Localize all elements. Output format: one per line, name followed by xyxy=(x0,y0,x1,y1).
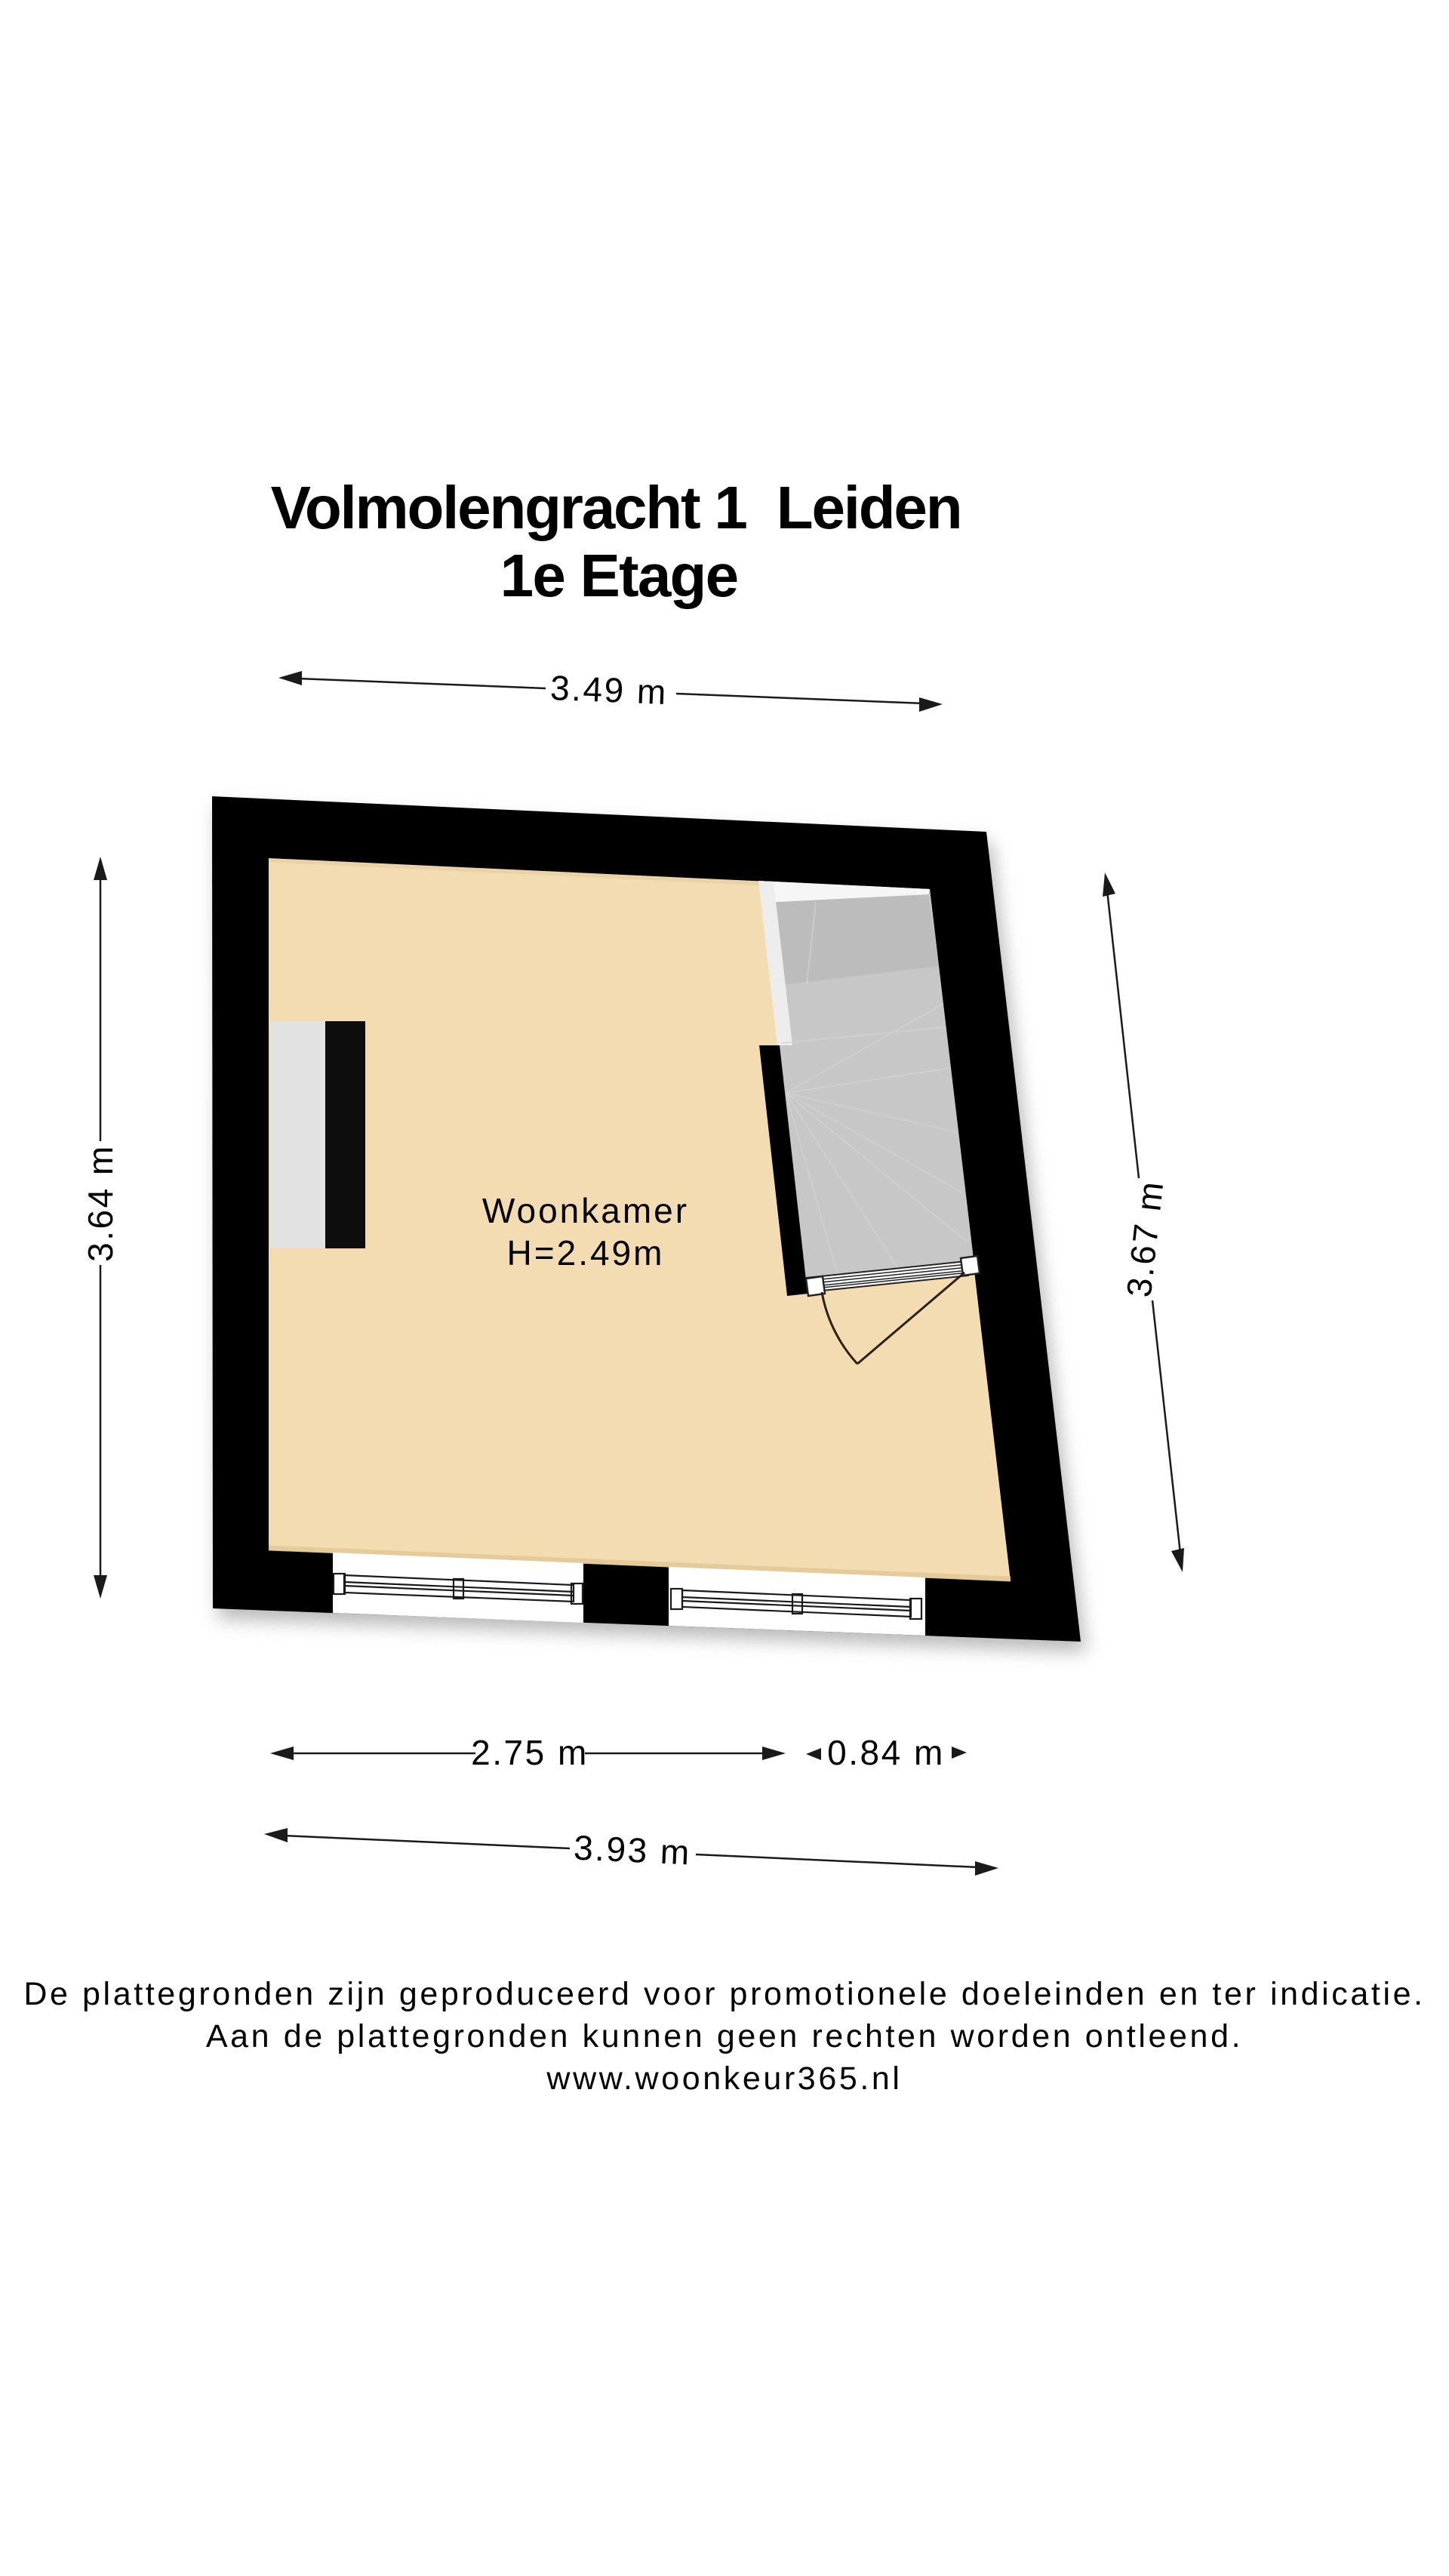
svg-text:Volmolengracht 1 Leiden: Volmolengracht 1 Leiden xyxy=(271,474,961,541)
svg-text:De plattegronden zijn geproduc: De plattegronden zijn geproduceerd voor … xyxy=(23,1976,1425,2012)
svg-text:2.75 m: 2.75 m xyxy=(471,1733,589,1772)
svg-text:3.67 m: 3.67 m xyxy=(1119,1178,1171,1299)
svg-text:1e Etage: 1e Etage xyxy=(500,542,738,609)
svg-text:0.84 m: 0.84 m xyxy=(827,1733,945,1772)
svg-text:3.49 m: 3.49 m xyxy=(549,668,669,712)
svg-text:H=2.49m: H=2.49m xyxy=(507,1233,665,1273)
svg-text:3.64 m: 3.64 m xyxy=(81,1144,120,1262)
svg-text:www.woonkeur365.nl: www.woonkeur365.nl xyxy=(546,2060,902,2097)
svg-text:Woonkamer: Woonkamer xyxy=(482,1191,689,1230)
svg-text:3.93 m: 3.93 m xyxy=(573,1827,692,1872)
svg-text:Aan de plattegronden kunnen ge: Aan de plattegronden kunnen geen rechten… xyxy=(206,2018,1243,2054)
